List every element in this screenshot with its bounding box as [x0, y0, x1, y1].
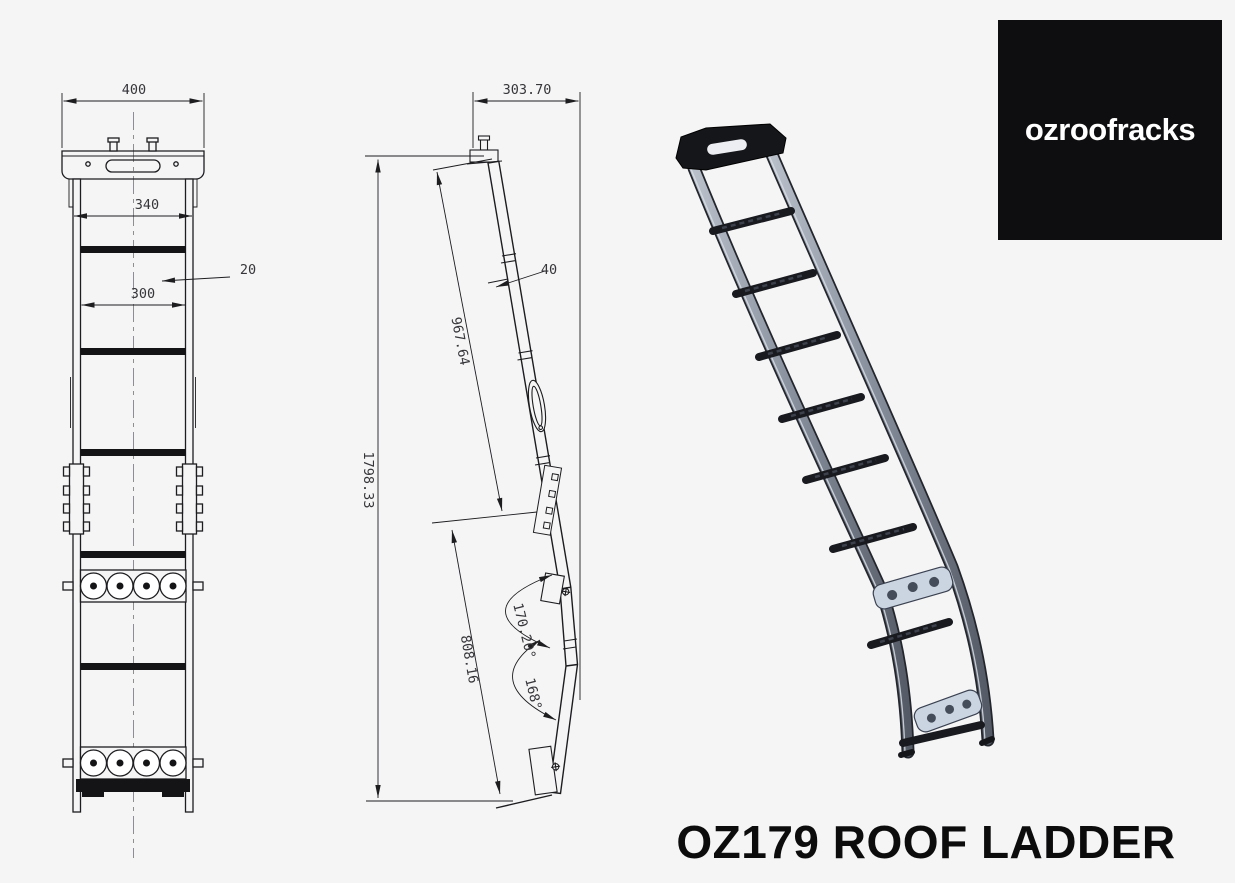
render-3d-view [676, 124, 992, 755]
sheet-title: OZ179 ROOF LADDER [628, 810, 1224, 874]
side-dimensions [365, 92, 580, 798]
front-clamp-left [64, 464, 90, 534]
front-clamp-right [177, 464, 203, 534]
brand-logo: ozroofracks [998, 20, 1222, 240]
side-view: 303.70 40 967.64 1798.33 808.16 170.20° … [360, 82, 580, 808]
dim-front-outer-width: 340 [135, 197, 159, 213]
dim-side-top-offset: 303.70 [503, 82, 552, 98]
dim-front-top-width: 400 [122, 82, 146, 98]
dim-side-upper-length: 967.64 [447, 316, 472, 367]
side-top-mount [467, 136, 502, 164]
dim-side-lower-length: 808.16 [457, 634, 481, 685]
front-view: 400 340 20 300 [62, 82, 256, 858]
brand-logo-text: ozroofracks [1025, 112, 1195, 148]
dim-side-upper-angle: 170.20° [509, 601, 538, 660]
drawing-sheet: 400 340 20 300 [0, 0, 1235, 883]
render-rungs [713, 211, 981, 743]
render-right-rail [767, 150, 988, 741]
dim-side-lower-angle: 168° [521, 676, 544, 711]
front-plate-screw-left [86, 162, 90, 166]
front-plate-screw-right [174, 162, 178, 166]
front-plate-bolts [108, 138, 158, 151]
dim-side-overall-height: 1798.33 [360, 452, 376, 509]
dim-side-tube-depth: 40 [541, 262, 557, 278]
front-roller-lower [63, 747, 203, 779]
front-plate-slot [106, 160, 160, 172]
dim-front-tube-width: 20 [240, 262, 256, 278]
front-roller-upper [63, 570, 203, 602]
render-roller-plate-upper [871, 565, 955, 611]
front-top-plate [62, 151, 204, 179]
dim-front-inner-width: 300 [131, 286, 155, 302]
front-bottom-bar [76, 779, 190, 797]
